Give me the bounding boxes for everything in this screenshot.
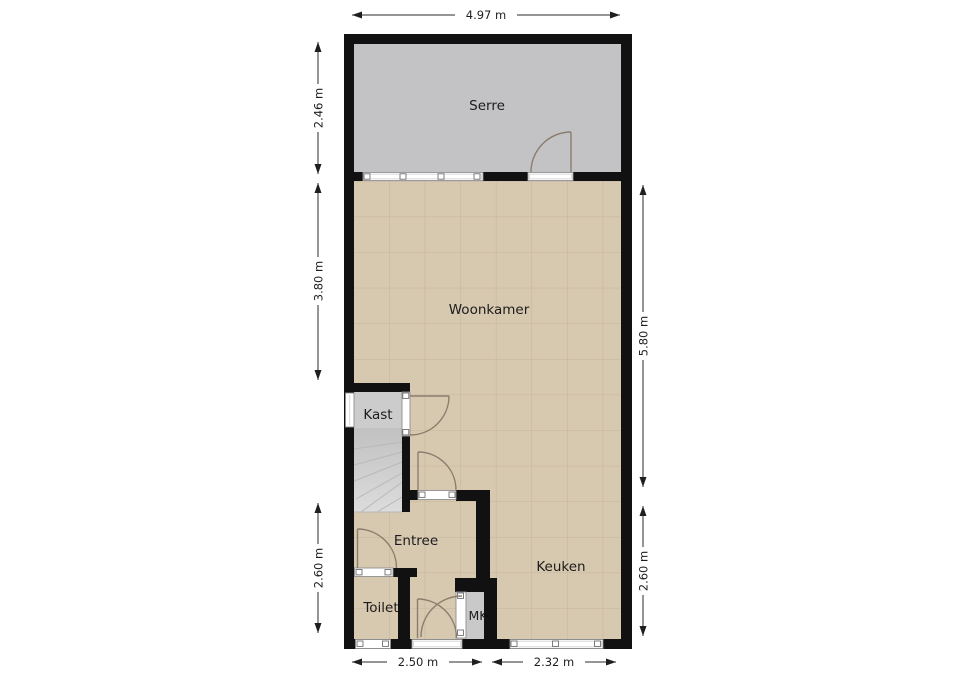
arrowhead [315, 370, 322, 380]
dimension-label: 2.50 m [398, 655, 438, 669]
wall-toilet-right [398, 577, 410, 639]
wall-entree-top-right [456, 490, 476, 501]
window-frame-mark [400, 174, 406, 179]
window-frame-mark [595, 641, 601, 646]
dimension-bottom-left: 2.50 m [352, 654, 482, 670]
window-frame-mark [403, 393, 409, 398]
arrowhead [492, 659, 502, 666]
arrowhead [640, 477, 647, 487]
arrowhead [640, 185, 647, 195]
window-frame-mark [474, 174, 480, 179]
floorplan-canvas: Serre Woonkamer Kast Entree Toilet MK Ke… [0, 0, 960, 679]
room-label-keuken: Keuken [536, 559, 585, 575]
dimension-left-middle: 3.80 m [310, 183, 326, 380]
arrowhead [352, 12, 362, 19]
arrowhead [315, 183, 322, 193]
room-label-woonkamer: Woonkamer [449, 302, 530, 318]
wall-serre-divider-right [573, 172, 621, 181]
wall-mk-top [455, 578, 497, 592]
room-label-kast: Kast [363, 407, 392, 423]
window-frame-mark [438, 174, 444, 179]
doorway-entree-woonkamer [418, 491, 456, 500]
dimension-top: 4.97 m [352, 7, 620, 23]
wall-entree-top-left [402, 490, 418, 500]
wall-serre-divider-mid [483, 172, 528, 181]
floorplan-drawing: Serre Woonkamer Kast Entree Toilet MK Ke… [0, 0, 960, 679]
arrowhead [606, 659, 616, 666]
room-label-toilet: Toilet [362, 600, 398, 616]
wall-entree-keuken-divider [476, 490, 490, 582]
window-frame-mark [364, 174, 370, 179]
wall-kast-top [344, 383, 410, 392]
threshold-serre-door [528, 173, 573, 181]
window-toilet-bottom [356, 640, 391, 649]
arrowhead [352, 659, 362, 666]
window-frame-mark [356, 570, 362, 575]
dimension-label: 3.80 m [312, 261, 326, 301]
arrowhead [315, 164, 322, 174]
arrowhead [315, 42, 322, 52]
threshold-front-door [412, 640, 462, 649]
room-label-serre: Serre [469, 98, 505, 114]
arrowhead [315, 623, 322, 633]
wall-toilet-top [393, 568, 417, 577]
dimension-left-top: 2.46 m [310, 42, 326, 174]
window-frame-mark [403, 430, 409, 435]
dimension-label: 2.60 m [312, 548, 326, 588]
window-keuken-bottom [510, 640, 603, 649]
doorway-toilet [355, 568, 394, 577]
arrowhead [640, 506, 647, 516]
window-kast-left [346, 393, 355, 427]
room-label-mk: MK [469, 608, 489, 623]
arrowhead [315, 503, 322, 513]
window-frame-mark [458, 630, 464, 635]
dimension-label: 2.46 m [312, 88, 326, 128]
dimension-left-bottom: 2.60 m [310, 503, 326, 633]
window-frame-mark [357, 641, 363, 646]
arrowhead [640, 626, 647, 636]
dimension-label: 4.97 m [466, 8, 506, 22]
doorway-kast [402, 392, 410, 436]
dimension-right-bottom: 2.60 m [635, 506, 651, 636]
wall-serre-divider-left [354, 172, 363, 181]
arrowhead [472, 659, 482, 666]
window-frame-mark [383, 641, 389, 646]
wall-stairs-right [402, 436, 410, 512]
window-frame-mark [449, 492, 455, 497]
window-frame-mark [385, 570, 391, 575]
window-frame-mark [419, 492, 425, 497]
dimension-label: 2.32 m [534, 655, 574, 669]
dimension-bottom-right: 2.32 m [492, 654, 616, 670]
doorway-mk [456, 592, 466, 638]
wall-left [344, 34, 354, 649]
room-label-entree: Entree [394, 533, 438, 549]
dimension-label: 2.60 m [637, 551, 651, 591]
window-serre-divider [363, 173, 483, 181]
wall-top [344, 34, 632, 44]
wall-right [621, 34, 632, 649]
dimension-label: 5.80 m [637, 316, 651, 356]
window-frame-mark [511, 641, 517, 646]
arrowhead [610, 12, 620, 19]
dimension-right-top: 5.80 m [635, 185, 651, 487]
window-frame-mark [553, 641, 559, 646]
